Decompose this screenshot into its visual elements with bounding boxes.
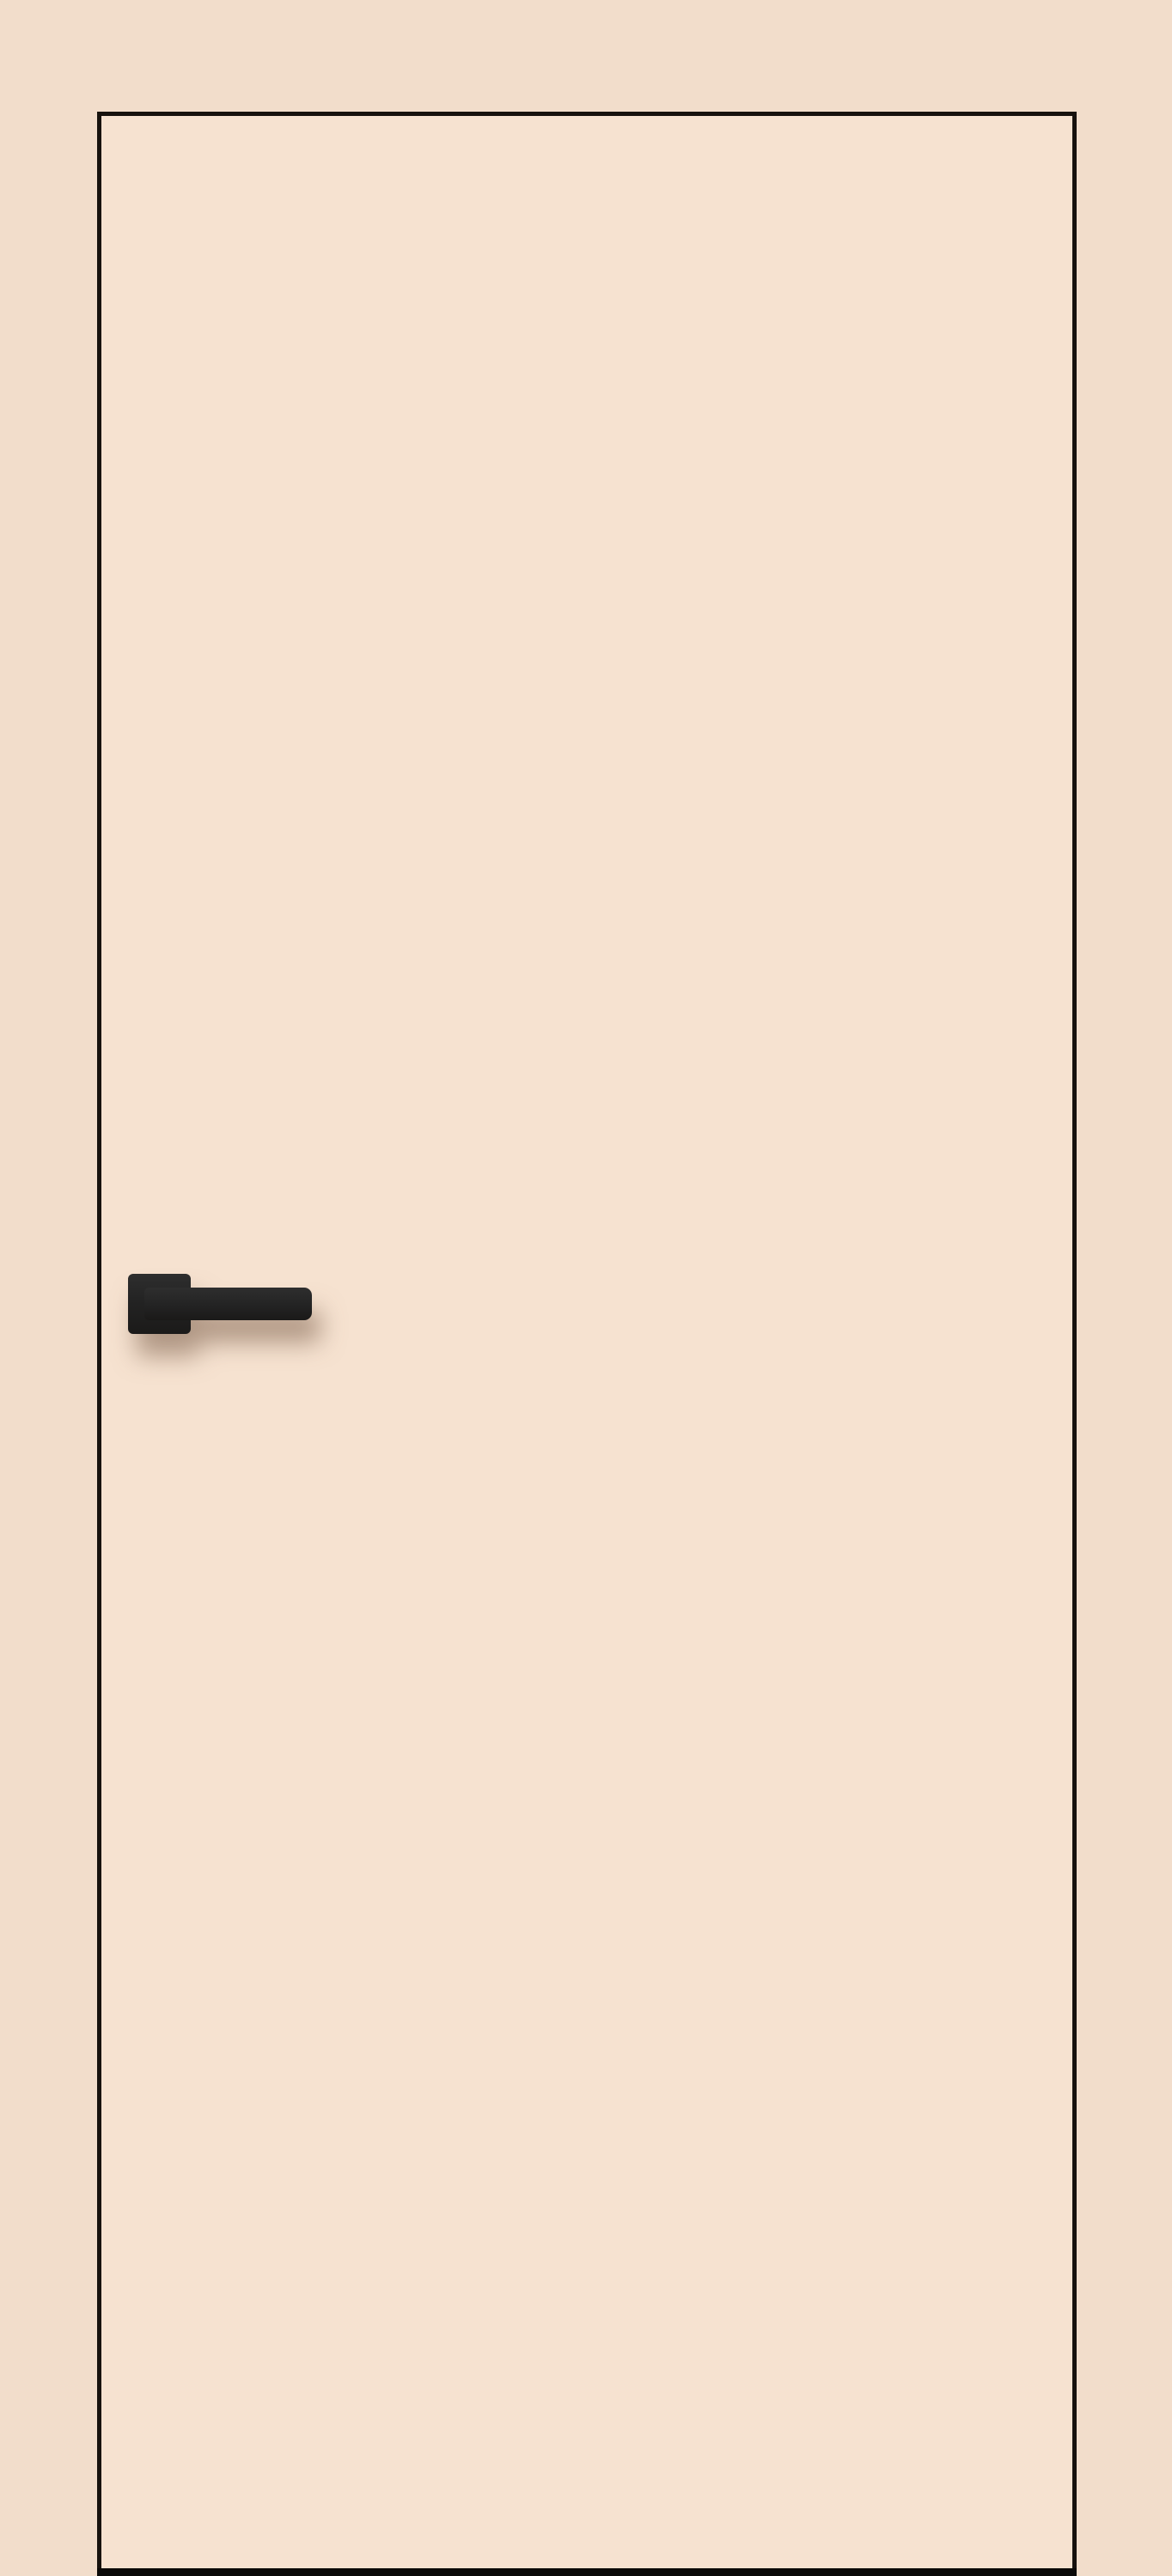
handle-lever: [144, 1288, 312, 1320]
door-panel: [97, 112, 1077, 2576]
door-product-image: [0, 0, 1172, 2576]
door-bottom-gap: [97, 2568, 1077, 2576]
door-handle: [128, 1274, 343, 1351]
